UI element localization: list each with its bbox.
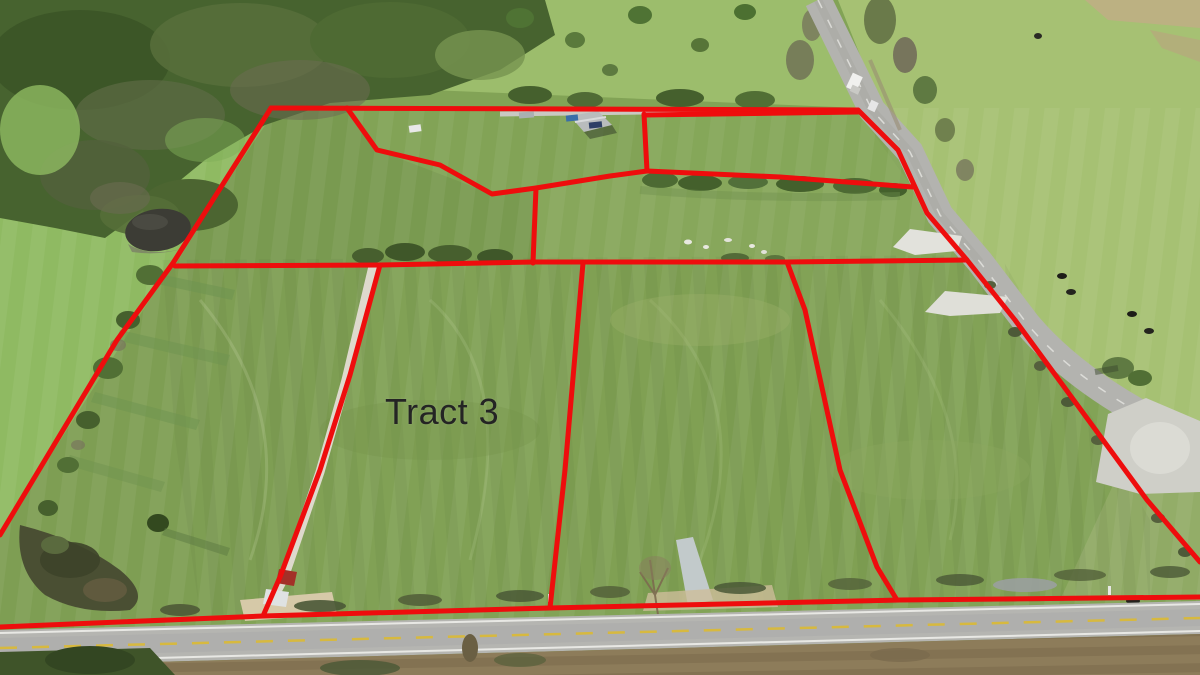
tract-3-label: Tract 3 — [385, 391, 499, 433]
boundary-upper-middle-divider — [533, 188, 536, 263]
boundary-homestead-east-tie — [644, 114, 647, 171]
aerial-photo — [0, 0, 1200, 675]
boundary-north-tract-line — [644, 112, 858, 115]
boundary-outer-top — [271, 108, 858, 110]
aerial-tract-map: Tract 3 — [0, 0, 1200, 675]
